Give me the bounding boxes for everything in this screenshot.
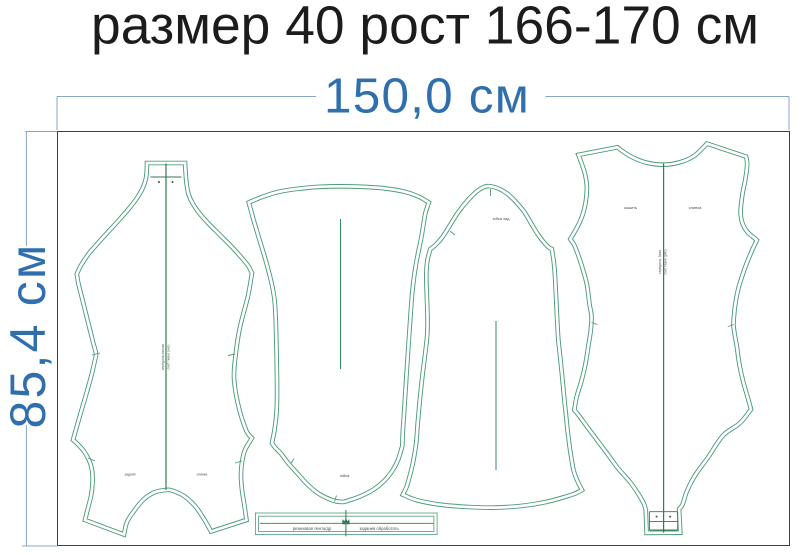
- svg-text:середина, база: середина, база: [658, 250, 662, 274]
- svg-text:сгиб ткани (р40): сгиб ткани (р40): [664, 249, 668, 274]
- svg-text:середина спинки: середина спинки: [161, 344, 165, 371]
- svg-text:зашить: зашить: [624, 205, 637, 210]
- svg-text:резиновая лента/др: резиновая лента/др: [293, 526, 332, 531]
- svg-text:размер 40 рост 166-170 см: размер 40 рост 166-170 см: [91, 0, 759, 56]
- svg-text:юбка зад: юбка зад: [493, 216, 511, 221]
- svg-text:задания обработать: задания обработать: [359, 526, 399, 531]
- svg-text:150,0 см: 150,0 см: [324, 69, 530, 124]
- svg-text:юбка: юбка: [340, 473, 350, 478]
- svg-text:задняя: задняя: [125, 473, 136, 477]
- svg-text:сгиб ткани (низ): сгиб ткани (низ): [167, 345, 171, 370]
- svg-text:85,4 см: 85,4 см: [0, 243, 56, 429]
- svg-text:спинка: спинка: [197, 473, 208, 477]
- svg-text:спинка: спинка: [689, 205, 702, 210]
